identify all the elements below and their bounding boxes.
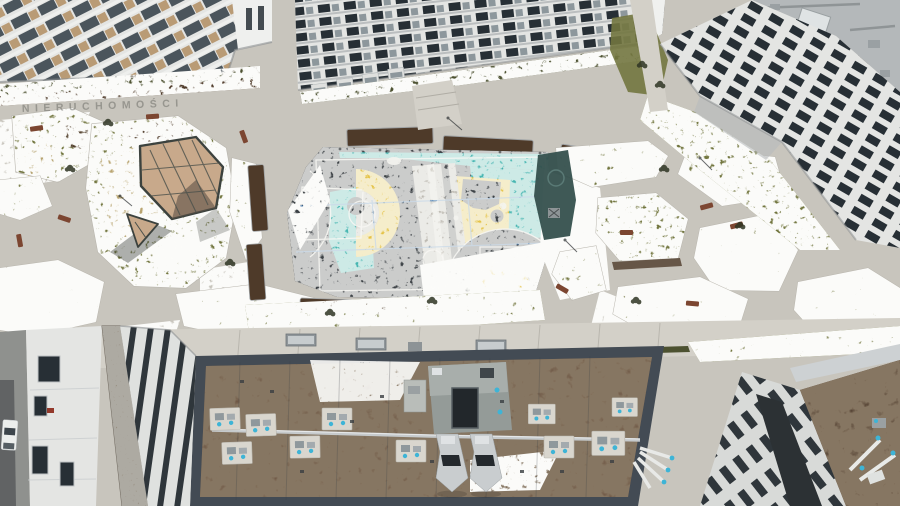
facade-west-block: [26, 326, 102, 506]
green-roof-building: [190, 346, 674, 506]
aerial-photo-canvas: NIERUCHOMOŚCI: [0, 0, 900, 506]
aerial-photo: NIERUCHOMOŚCI: [0, 0, 900, 506]
utility-box: [408, 342, 422, 351]
garage-skylight: [356, 338, 386, 350]
garage-skylight: [286, 334, 316, 346]
parked-car: [1, 420, 18, 451]
machine-room-skylight: [452, 388, 478, 428]
court-snow: [287, 147, 556, 300]
balcony-flowers: [47, 408, 54, 413]
